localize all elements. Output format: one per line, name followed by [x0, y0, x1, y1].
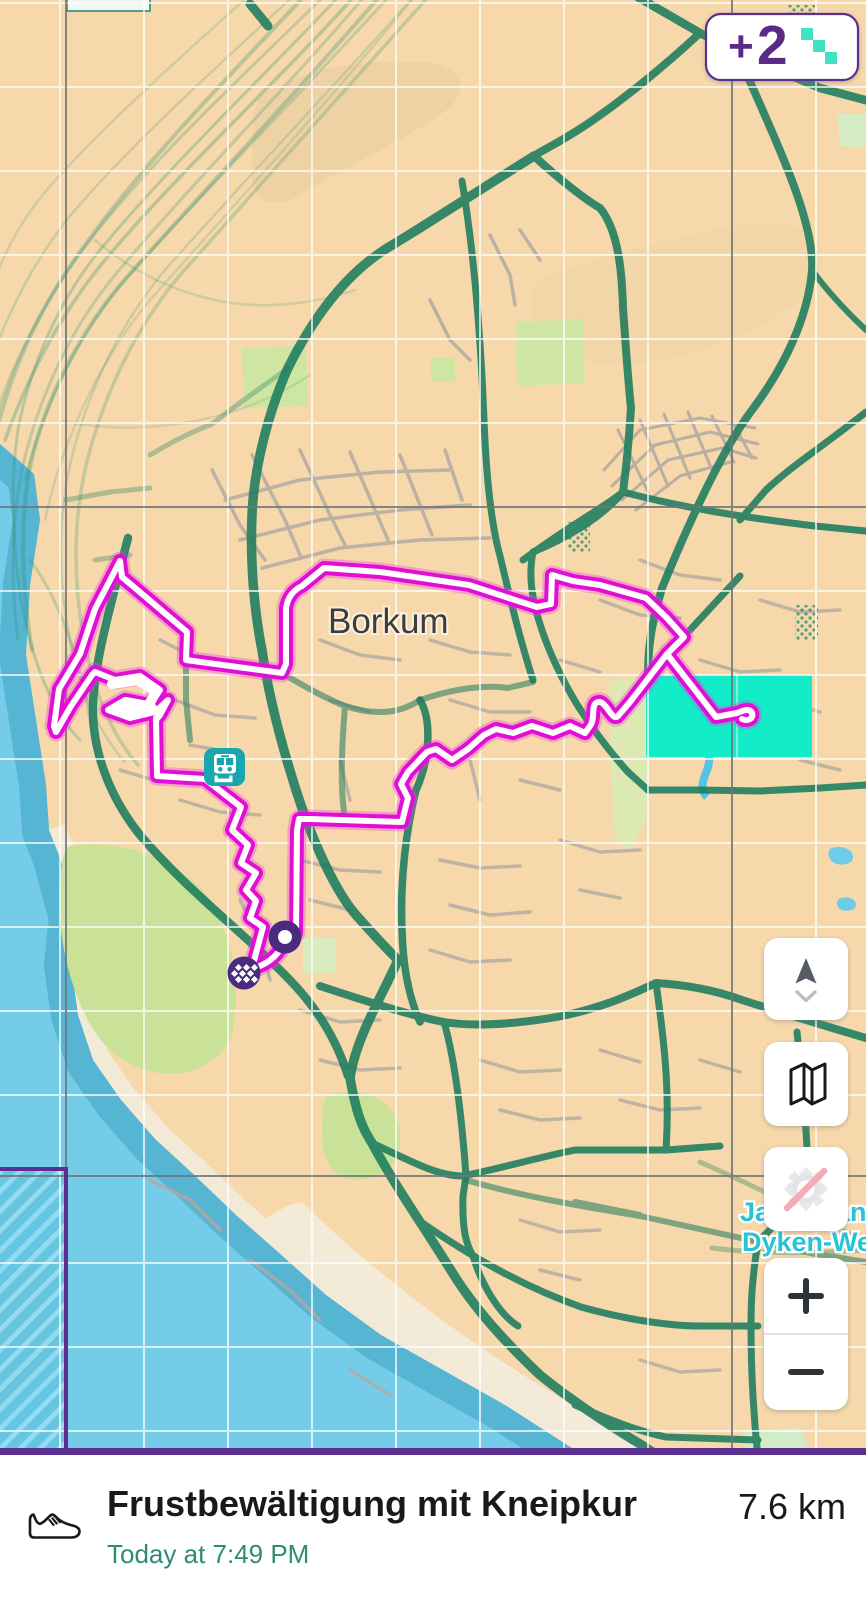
svg-text:Frustbewältigung mit Kneipkur: Frustbewältigung mit Kneipkur	[107, 1483, 637, 1524]
svg-text:Dyken-Weg: Dyken-Weg	[742, 1227, 866, 1257]
svg-text:+: +	[728, 22, 754, 71]
svg-text:2: 2	[757, 14, 788, 76]
svg-text:7.6 km: 7.6 km	[738, 1486, 846, 1527]
svg-text:Today at 7:49 PM: Today at 7:49 PM	[107, 1539, 309, 1569]
svg-text:Borkum: Borkum	[328, 602, 449, 641]
